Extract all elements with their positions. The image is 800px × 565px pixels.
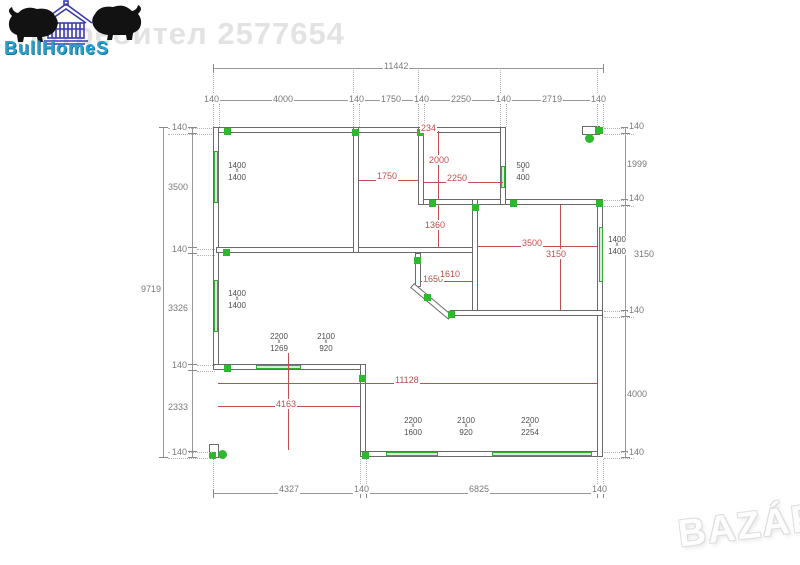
tick xyxy=(188,364,197,365)
window xyxy=(386,452,438,456)
extension-line xyxy=(197,365,215,366)
opening-size-label: 2100x920 xyxy=(453,417,479,436)
dim-label: 4327 xyxy=(278,484,300,494)
extension-line xyxy=(359,104,360,127)
dim-label: 2250 xyxy=(446,173,468,183)
wall xyxy=(353,127,359,253)
marker-dot xyxy=(596,200,603,207)
brand-text: BullHomeS xyxy=(4,38,109,59)
tick xyxy=(603,64,604,73)
dim-label: 3150 xyxy=(633,249,655,259)
marker-dot xyxy=(595,127,602,134)
marker-dot xyxy=(223,249,230,256)
dim-line xyxy=(213,493,603,494)
extension-line xyxy=(604,134,634,135)
marker-dot xyxy=(448,311,455,318)
dim-label: 1999 xyxy=(626,159,648,169)
dim-label: 11442 xyxy=(383,61,409,71)
tick xyxy=(621,133,630,134)
dim-label: 1610 xyxy=(439,269,461,279)
dim-label: 140 xyxy=(591,484,608,494)
extension-line xyxy=(604,206,634,207)
tick xyxy=(188,247,197,248)
tick xyxy=(188,253,197,254)
wall xyxy=(213,127,505,133)
tick xyxy=(159,127,168,128)
extension-line xyxy=(506,104,507,127)
dim-label: 140 xyxy=(353,484,370,494)
extension-line xyxy=(603,104,604,127)
dim-label: 2000 xyxy=(428,155,450,165)
marker-dot xyxy=(424,294,431,301)
opening-size-label: 2200x1269 xyxy=(266,333,292,352)
opening-size-label: 2200x2254 xyxy=(517,417,543,436)
extension-line xyxy=(168,458,212,459)
dim-line-red xyxy=(438,131,439,199)
tick xyxy=(213,64,214,73)
opening-size-label: 2200x1600 xyxy=(400,417,426,436)
dim-label: 140 xyxy=(203,94,220,104)
wall xyxy=(472,199,478,316)
window xyxy=(501,166,505,188)
tick xyxy=(188,457,197,458)
extension-line xyxy=(213,459,214,492)
extension-line xyxy=(168,134,212,135)
dim-label: 1360 xyxy=(424,220,446,230)
opening-size-label: 500x400 xyxy=(510,162,536,181)
extension-line xyxy=(219,104,220,127)
tick xyxy=(213,489,214,498)
dim-line xyxy=(192,127,193,457)
tick xyxy=(621,205,630,206)
opening-size-label: 2100x920 xyxy=(313,333,339,352)
extension-line xyxy=(604,317,634,318)
dim-label: 140 xyxy=(171,360,188,370)
dim-label: 140 xyxy=(628,121,645,131)
dim-label: 2719 xyxy=(541,94,563,104)
marker-dot xyxy=(472,204,479,211)
marker-dot xyxy=(414,257,421,264)
marker-circle xyxy=(585,134,594,143)
extension-line xyxy=(604,458,634,459)
wall xyxy=(450,310,603,316)
floor-plan-page: Потребител 2577654 BullHomeS 11442140 xyxy=(0,0,800,565)
dim-label: 234 xyxy=(420,123,437,133)
opening-size-label: 1400x1400 xyxy=(604,236,630,255)
dim-label: 140 xyxy=(413,94,430,104)
dim-label: 2250 xyxy=(450,94,472,104)
extension-line xyxy=(197,371,215,372)
marker-dot xyxy=(359,375,366,382)
tick xyxy=(188,127,197,128)
tick xyxy=(159,457,168,458)
window xyxy=(492,452,592,456)
dim-label: 9719 xyxy=(140,284,162,294)
dim-label: 3500 xyxy=(167,182,189,192)
extension-line xyxy=(197,249,215,250)
dim-label: 11128 xyxy=(394,375,420,385)
dim-label: 2333 xyxy=(167,402,189,412)
dim-label: 4000 xyxy=(626,389,648,399)
dim-label: 140 xyxy=(171,447,188,457)
dim-label: 140 xyxy=(628,447,645,457)
window xyxy=(599,227,603,282)
dim-label: 1750 xyxy=(380,94,402,104)
dim-label: 140 xyxy=(628,305,645,315)
wall xyxy=(216,247,478,253)
tick xyxy=(621,457,630,458)
tick xyxy=(188,370,197,371)
marker-dot xyxy=(429,200,436,207)
marker-dot xyxy=(362,452,369,459)
dim-label: 4000 xyxy=(272,94,294,104)
opening-size-label: 1400x1400 xyxy=(224,290,250,309)
opening-size-label: 1400x1400 xyxy=(224,162,250,181)
dim-label: 140 xyxy=(590,94,607,104)
dim-label: 1750 xyxy=(376,171,398,181)
dim-label: 4163 xyxy=(275,399,297,409)
dim-label: 3500 xyxy=(521,238,543,248)
dim-label: 140 xyxy=(171,122,188,132)
wall xyxy=(418,127,424,205)
window xyxy=(256,365,301,369)
tick xyxy=(188,451,197,452)
marker-circle xyxy=(218,450,227,459)
dim-label: 140 xyxy=(171,244,188,254)
marker-dot xyxy=(224,365,231,372)
tick xyxy=(621,316,630,317)
dim-label: 6825 xyxy=(468,484,490,494)
dim-line xyxy=(163,127,164,457)
dim-label: 3326 xyxy=(167,303,189,313)
marker-dot xyxy=(352,129,359,136)
dim-label: 140 xyxy=(348,94,365,104)
floor-plan-drawing: 1144214040001401750140225014027191409719… xyxy=(0,0,800,565)
dim-label: 140 xyxy=(628,193,645,203)
tick xyxy=(188,133,197,134)
bullhomes-logo: BullHomeS xyxy=(0,0,150,62)
dim-label: 140 xyxy=(495,94,512,104)
marker-dot xyxy=(224,128,231,135)
window xyxy=(214,280,218,332)
extension-line xyxy=(197,255,215,256)
dim-line xyxy=(625,127,626,457)
marker-dot xyxy=(510,200,517,207)
wall-diagonal xyxy=(410,283,452,320)
window xyxy=(214,151,218,203)
dim-label: 3150 xyxy=(545,249,567,259)
